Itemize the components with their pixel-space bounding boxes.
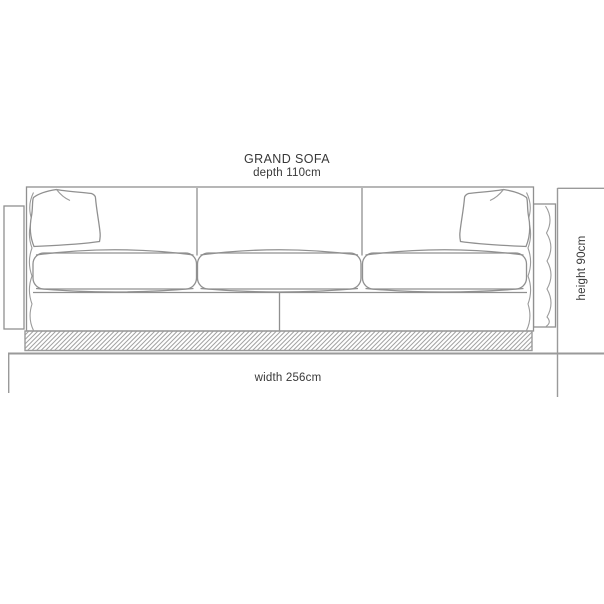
sofa-technical-drawing: GRAND SOFA depth 110cm [0,0,604,604]
depth-label: depth 110cm [253,167,321,179]
seat-cushion-right [363,250,527,292]
seat-cushion-middle [198,250,362,292]
width-dimension: width 256cm [9,354,558,398]
plinth-hatched [25,331,532,351]
width-label: width 256cm [254,372,322,384]
right-arm-panel [534,204,556,327]
seat-cushion-left [33,250,197,292]
cushion-front-face [198,253,362,289]
back-pillow-right [460,190,530,247]
drawing-title: GRAND SOFA [244,152,330,166]
height-label: height 90cm [576,236,588,301]
drawing-canvas: GRAND SOFA depth 110cm [0,0,604,604]
cushion-front-face [363,253,527,289]
left-arm-panel [4,206,24,329]
cushion-front-face [33,253,197,289]
height-dimension: height 90cm [558,188,604,354]
back-pillow-left [30,190,100,247]
